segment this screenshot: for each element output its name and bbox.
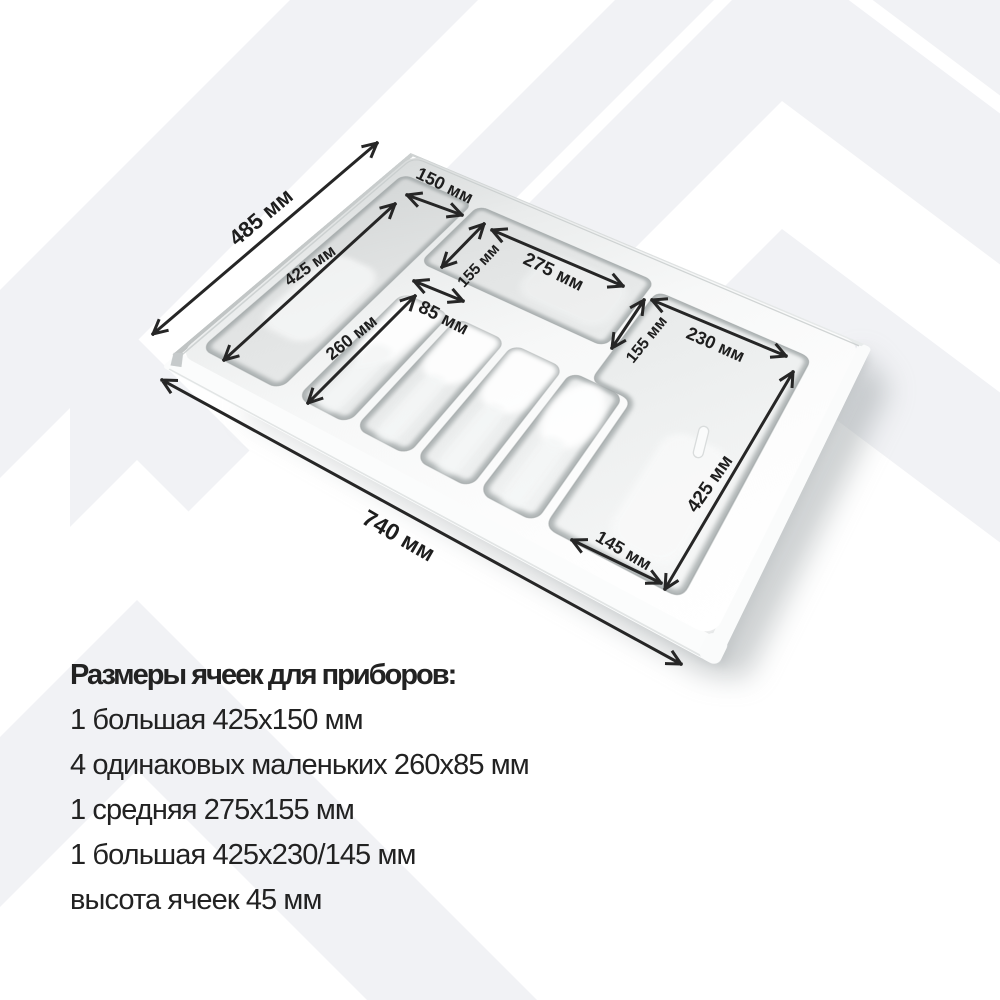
svg-text:230 мм: 230 мм xyxy=(683,323,747,366)
svg-text:425 мм: 425 мм xyxy=(683,451,738,516)
svg-text:740 мм: 740 мм xyxy=(358,504,440,566)
svg-text:145 мм: 145 мм xyxy=(592,527,655,575)
